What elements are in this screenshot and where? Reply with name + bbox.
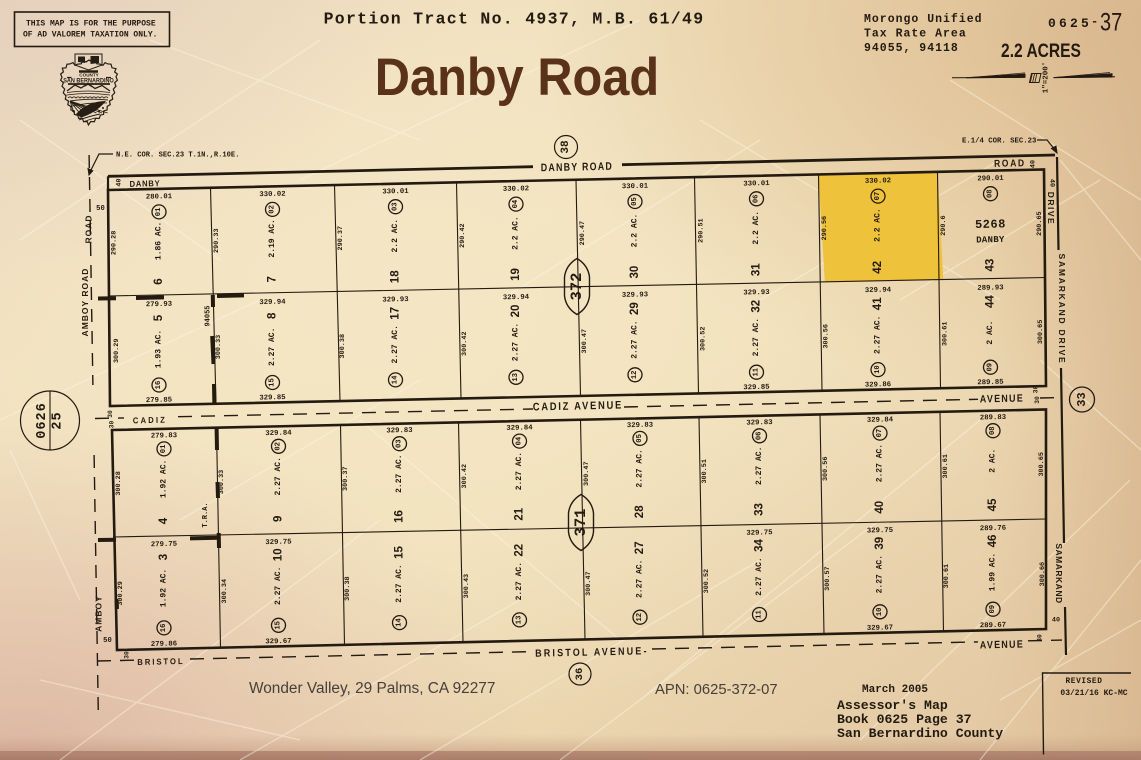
svg-text:16: 16 [160,624,168,633]
svg-text:330.02: 330.02 [503,185,529,194]
svg-text:SAMARKAND DRIVE: SAMARKAND DRIVE [1057,253,1067,364]
svg-text:11: 11 [756,610,764,619]
svg-text:279.83: 279.83 [151,432,178,441]
svg-text:42: 42 [872,261,884,274]
svg-text:9: 9 [273,516,285,522]
svg-text:329.75: 329.75 [265,539,291,548]
svg-text:300.42: 300.42 [461,331,469,355]
svg-text:SAMARKAND: SAMARKAND [1054,543,1064,603]
svg-text:21: 21 [514,507,526,520]
svg-text:2.27 AC.: 2.27 AC. [515,562,524,600]
svg-text:09: 09 [987,363,995,372]
svg-text:06: 06 [753,194,761,203]
svg-text:30: 30 [1037,634,1044,642]
svg-text:03: 03 [396,439,404,448]
svg-text:279.93: 279.93 [146,301,173,310]
svg-text:289.76: 289.76 [980,525,1006,534]
svg-text:1.92 AC.: 1.92 AC. [160,460,169,498]
svg-text:40: 40 [116,178,124,186]
svg-text:COUNTY: COUNTY [79,73,98,78]
svg-text:300.61: 300.61 [943,564,951,588]
svg-text:329.93: 329.93 [622,291,649,300]
svg-text:2.2 ACRES: 2.2 ACRES [1001,40,1081,62]
svg-text:50: 50 [96,205,105,213]
svg-text:CADIZ AVENUE: CADIZ AVENUE [533,400,624,414]
svg-text:11: 11 [753,367,761,376]
svg-text:Danby Road: Danby Road [375,47,659,106]
svg-text:12: 12 [636,613,644,622]
svg-text:Wonder Valley, 29 Palms, CA 9: Wonder Valley, 29 Palms, CA 92277 [249,680,495,697]
svg-text:31: 31 [751,263,763,276]
svg-text:DANBY: DANBY [976,235,1005,246]
svg-text:300.66: 300.66 [1039,562,1047,586]
svg-text:300.57: 300.57 [824,566,832,590]
svg-text:300.56: 300.56 [822,457,830,481]
svg-text:2.27 AC.: 2.27 AC. [874,316,883,354]
svg-text:BRISTOL AVENUE-: BRISTOL AVENUE- [535,646,649,660]
svg-text:330.02: 330.02 [259,191,285,200]
svg-text:37: 37 [1100,8,1122,36]
svg-text:300.38: 300.38 [344,576,352,600]
svg-text:2 AC.: 2 AC. [986,321,995,345]
svg-text:08: 08 [989,426,997,435]
svg-text:329.83: 329.83 [627,422,654,431]
svg-text:ROAD: ROAD [994,158,1026,169]
svg-text:280.01: 280.01 [146,193,173,202]
svg-text:330.01: 330.01 [743,180,770,189]
svg-text:2.27 AC.: 2.27 AC. [395,564,404,602]
svg-text:Assessor's Map: Assessor's Map [837,698,948,713]
svg-text:329.67: 329.67 [867,624,893,633]
svg-text:N.E. COR. SEC.23 T.1N.,R.10E.: N.E. COR. SEC.23 T.1N.,R.10E. [116,152,239,160]
svg-text:2.27 AC.: 2.27 AC. [636,449,645,487]
svg-text:329.84: 329.84 [506,424,533,433]
svg-text:5268: 5268 [975,217,1006,232]
svg-text:329.85: 329.85 [743,384,769,393]
svg-text:8: 8 [267,312,279,319]
svg-text:329.94: 329.94 [503,294,530,303]
svg-text:34: 34 [754,539,766,552]
svg-text:2.27 AC.: 2.27 AC. [391,325,400,363]
svg-text:2 AC.: 2 AC. [989,449,998,473]
svg-text:2.2 AC.: 2.2 AC. [512,216,521,250]
svg-text:2.27 AC.: 2.27 AC. [755,447,764,485]
svg-text:290.56: 290.56 [821,216,829,240]
svg-text:13: 13 [516,616,524,625]
svg-text:2.27 AC.: 2.27 AC. [755,557,764,595]
svg-text:25: 25 [51,411,66,429]
svg-text:290.28: 290.28 [111,231,119,255]
svg-text:AVENUE: AVENUE [980,639,1024,652]
svg-text:329.85: 329.85 [259,394,285,403]
svg-text:1″=200′: 1″=200′ [1043,62,1051,94]
svg-text:279.85: 279.85 [146,397,172,406]
svg-text:E.1/4 COR. SEC.23: E.1/4 COR. SEC.23 [962,138,1037,146]
svg-text:-: - [1091,15,1098,29]
svg-text:45: 45 [987,498,999,511]
svg-text:300.34: 300.34 [221,579,229,603]
svg-text:300.56: 300.56 [823,324,831,348]
svg-text:18: 18 [390,270,402,283]
svg-text:March 2005: March 2005 [862,684,928,696]
svg-text:16: 16 [155,381,163,390]
svg-text:329.83: 329.83 [746,419,773,428]
svg-text:329.84: 329.84 [265,430,292,439]
svg-text:20: 20 [510,305,522,318]
svg-text:4: 4 [158,517,170,524]
svg-text:290.65: 290.65 [1036,211,1044,235]
svg-text:40: 40 [1048,179,1056,187]
svg-text:289.67: 289.67 [980,622,1006,631]
svg-text:300.65: 300.65 [1038,452,1046,476]
svg-text:2.27 AC.: 2.27 AC. [876,444,885,482]
svg-text:300.42: 300.42 [461,464,469,488]
svg-text:AVENUE: AVENUE [980,393,1024,406]
svg-text:300.52: 300.52 [703,569,711,593]
svg-text:0626: 0626 [35,402,50,438]
svg-text:THIS MAP IS FOR THE PURPOSE: THIS MAP IS FOR THE PURPOSE [26,20,156,29]
svg-text:05: 05 [631,197,639,206]
svg-text:15: 15 [275,621,283,630]
svg-text:19: 19 [510,268,522,281]
svg-text:300.47: 300.47 [583,461,591,485]
svg-text:Portion Tract No. 4937, M.B. 6: Portion Tract No. 4937, M.B. 61/49 [324,10,705,29]
svg-text:2.27 AC.: 2.27 AC. [752,318,761,356]
svg-text:ROAD: ROAD [84,214,94,243]
svg-text:2.27 AC.: 2.27 AC. [268,328,277,366]
svg-text:05: 05 [636,434,644,443]
svg-text:329.75: 329.75 [746,529,772,538]
svg-text:27: 27 [634,541,646,554]
svg-text:7: 7 [267,276,279,282]
svg-text:329.94: 329.94 [865,287,892,296]
svg-text:38: 38 [560,140,572,154]
svg-text:39: 39 [874,537,886,550]
svg-text:22: 22 [514,544,526,557]
svg-text:33: 33 [754,503,766,516]
svg-text:14: 14 [392,375,400,384]
svg-text:2.27 AC.: 2.27 AC. [274,567,283,605]
svg-text:30: 30 [124,651,131,659]
svg-text:372: 372 [568,273,586,301]
svg-text:50: 50 [103,637,112,645]
svg-text:28: 28 [634,505,646,518]
svg-text:29: 29 [629,302,641,315]
svg-text:94055, 94118: 94055, 94118 [864,42,959,55]
svg-text:40: 40 [1030,160,1038,168]
svg-text:46: 46 [987,535,999,548]
svg-text:16: 16 [394,510,406,523]
svg-text:Morongo Unified: Morongo Unified [864,13,983,26]
svg-text:08: 08 [987,189,995,198]
svg-text:2.2 AC.: 2.2 AC. [631,214,640,248]
svg-text:CADIZ: CADIZ [133,415,167,425]
svg-text:30: 30 [1034,396,1041,404]
svg-text:03: 03 [392,202,400,211]
svg-text:2.27 AC.: 2.27 AC. [395,454,404,492]
svg-text:AMBOY: AMBOY [94,595,104,632]
svg-text:44: 44 [985,295,997,308]
svg-text:36: 36 [574,668,586,681]
svg-text:94055: 94055 [205,305,213,326]
svg-text:290.01: 290.01 [977,175,1004,184]
svg-text:2.2 AC.: 2.2 AC. [874,208,883,242]
svg-text:03/21/16 KC-MC: 03/21/16 KC-MC [1060,689,1127,698]
svg-text:300.61: 300.61 [942,322,950,346]
svg-text:San Bernardino County: San Bernardino County [837,726,1003,741]
svg-text:0625: 0625 [1048,16,1092,31]
svg-text:2.27 AC.: 2.27 AC. [631,320,640,358]
svg-text:300.37: 300.37 [342,466,350,490]
svg-text:290.33: 290.33 [213,228,221,252]
svg-text:02: 02 [269,205,277,214]
svg-text:330.01: 330.01 [622,183,649,192]
svg-text:300.33: 300.33 [218,470,226,494]
svg-text:41: 41 [872,297,884,310]
svg-text:300.43: 300.43 [463,574,471,598]
svg-text:330.02: 330.02 [865,177,891,186]
svg-text:06: 06 [756,431,764,440]
svg-text:OF AD VALOREM TAXATION ONLY.: OF AD VALOREM TAXATION ONLY. [23,31,157,40]
svg-text:14: 14 [396,618,404,627]
svg-text:Book 0625 Page 37: Book 0625 Page 37 [837,712,972,727]
svg-text:Tax Rate Area: Tax Rate Area [864,28,967,41]
svg-text:09: 09 [989,605,997,614]
svg-text:AMBOY ROAD: AMBOY ROAD [80,268,90,337]
svg-text:329.75: 329.75 [867,527,893,536]
svg-text:10: 10 [876,607,884,616]
svg-text:DANBY: DANBY [129,179,160,189]
svg-text:290.37: 290.37 [337,226,345,250]
svg-text:289.85: 289.85 [977,379,1003,388]
svg-text:DANBY ROAD: DANBY ROAD [541,161,613,175]
svg-text:3: 3 [158,554,170,560]
svg-text:30: 30 [107,410,114,418]
svg-text:30: 30 [629,266,641,279]
svg-text:1.86 AC.: 1.86 AC. [155,222,164,260]
svg-text:BRISTOL: BRISTOL [137,657,184,667]
svg-text:15: 15 [269,378,277,387]
svg-text:300.47: 300.47 [581,329,589,353]
svg-text:300.52: 300.52 [700,327,708,351]
svg-text:2.27 AC.: 2.27 AC. [636,560,645,598]
svg-text:17: 17 [390,307,402,320]
svg-text:300.38: 300.38 [339,334,347,358]
svg-text:289.83: 289.83 [980,414,1007,423]
svg-text:329.93: 329.93 [743,289,770,298]
svg-text:13: 13 [512,373,520,382]
svg-text:32: 32 [751,300,763,313]
svg-text:04: 04 [512,199,520,208]
svg-text:300.33: 300.33 [215,335,223,359]
svg-text:290.47: 290.47 [579,221,587,245]
svg-text:2.19 AC.: 2.19 AC. [268,219,277,257]
svg-text:289.93: 289.93 [977,284,1004,293]
svg-text:300.65: 300.65 [1037,320,1045,344]
svg-text:01: 01 [155,207,163,216]
svg-text:43: 43 [985,259,997,272]
svg-text:2.2 AC.: 2.2 AC. [391,219,400,253]
svg-text:1.99 AC.: 1.99 AC. [989,553,998,591]
svg-text:290.42: 290.42 [459,223,467,247]
svg-text:329.84: 329.84 [867,416,894,425]
svg-text:330.01: 330.01 [382,188,409,197]
svg-text:DRIVE: DRIVE [1046,192,1056,225]
svg-text:329.94: 329.94 [259,299,286,308]
svg-text:2.27 AC.: 2.27 AC. [876,555,885,593]
svg-text:15: 15 [394,546,406,559]
svg-text:1.92 AC.: 1.92 AC. [160,569,169,607]
svg-text:04: 04 [516,436,524,445]
svg-text:T.R.A.: T.R.A. [202,502,210,527]
svg-text:10: 10 [874,365,882,374]
svg-text:REVISED: REVISED [1066,678,1103,686]
svg-text:2.27 AC.: 2.27 AC. [274,457,283,495]
svg-text:290.51: 290.51 [698,218,706,242]
svg-text:329.67: 329.67 [265,638,291,647]
svg-text:5: 5 [153,314,165,321]
svg-text:02: 02 [275,442,283,451]
svg-text:300.61: 300.61 [942,454,950,478]
svg-text:1.93 AC.: 1.93 AC. [155,330,164,368]
svg-text:329.86: 329.86 [865,381,891,390]
svg-text:10: 10 [273,548,285,561]
svg-text:279.86: 279.86 [151,640,177,649]
svg-text:300.47: 300.47 [585,571,593,595]
svg-text:07: 07 [876,429,884,438]
svg-text:40: 40 [1052,617,1060,625]
svg-text:329.83: 329.83 [386,427,413,436]
svg-text:6: 6 [153,278,165,284]
svg-text:371: 371 [572,509,590,537]
svg-text:290.6: 290.6 [940,215,948,235]
svg-text:300.29: 300.29 [113,339,121,363]
svg-text:01: 01 [160,444,168,453]
svg-text:30: 30 [109,421,116,429]
svg-text:12: 12 [631,370,639,379]
svg-text:2.27 AC.: 2.27 AC. [512,323,521,361]
svg-text:2.2 AC.: 2.2 AC. [752,211,761,245]
svg-text:40: 40 [874,501,886,514]
svg-text:07: 07 [874,192,882,201]
svg-text:300.28: 300.28 [115,471,123,495]
svg-text:279.75: 279.75 [151,541,177,550]
svg-text:33: 33 [1075,392,1089,406]
svg-text:329.93: 329.93 [382,296,409,305]
svg-text:APN: 0625-372-07: APN: 0625-372-07 [655,682,778,698]
svg-text:300.51: 300.51 [701,459,709,483]
svg-text:2.27 AC.: 2.27 AC. [515,452,524,490]
